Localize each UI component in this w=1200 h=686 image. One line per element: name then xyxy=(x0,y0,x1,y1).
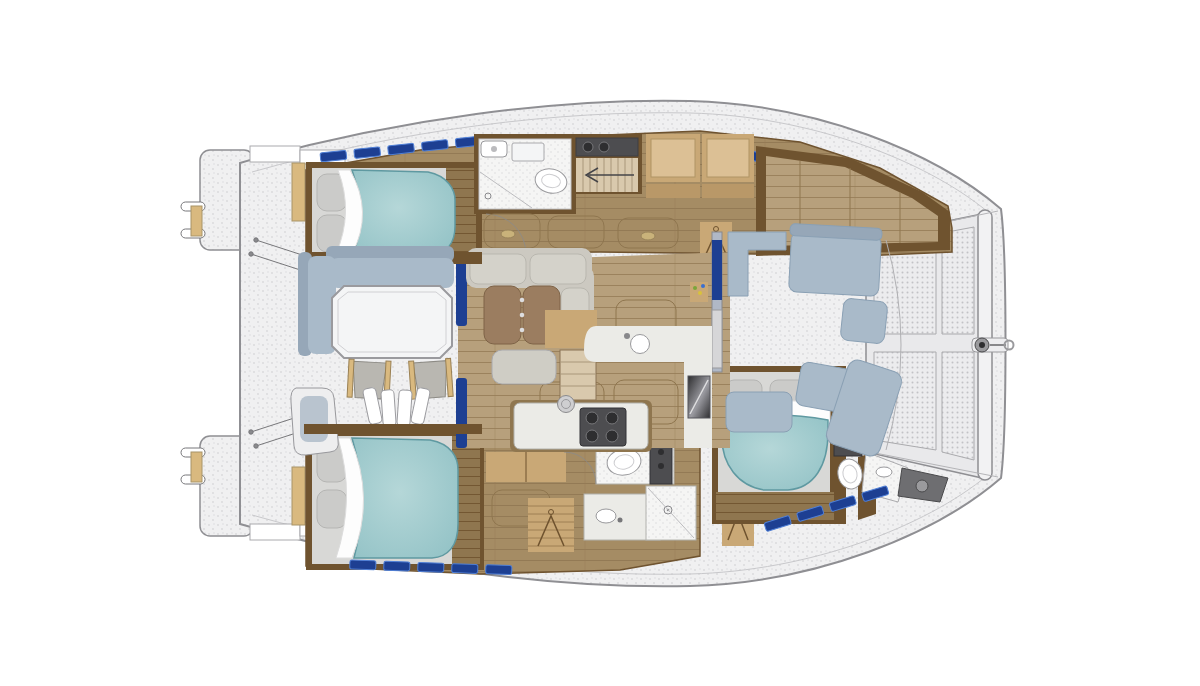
burner-icon xyxy=(606,430,618,442)
deck-locker-board-bottom xyxy=(292,467,305,525)
hull-window xyxy=(350,560,376,570)
davit-hook-icon xyxy=(254,238,258,242)
hinge-icon xyxy=(520,298,525,303)
cockpit-cushion xyxy=(788,232,881,297)
vanity-counter xyxy=(512,143,544,161)
hinge-icon xyxy=(520,313,525,318)
cockpit-cushion xyxy=(840,298,888,344)
bowsprit-fitting xyxy=(972,338,1014,352)
cockpit-cushion xyxy=(726,392,792,432)
gauge-icon xyxy=(658,449,664,455)
sink xyxy=(596,509,616,523)
salon-side-window xyxy=(456,256,467,326)
cabinet-shelf xyxy=(702,184,754,198)
burner-icon xyxy=(606,412,618,424)
salon-side-window xyxy=(456,378,467,448)
cabinet-door xyxy=(651,139,695,177)
burner-icon xyxy=(586,412,598,424)
port-companionway xyxy=(572,134,642,194)
bottle-icon xyxy=(693,286,697,290)
hull-window xyxy=(486,565,512,575)
table-leaf xyxy=(484,286,521,344)
ceiling-lamp-icon xyxy=(641,232,655,240)
wet-bar-shelf xyxy=(690,282,708,302)
davit-hook-icon xyxy=(254,444,258,448)
stove-dial-icon xyxy=(583,142,593,152)
davit-hook-icon xyxy=(249,430,253,434)
cabinet-door xyxy=(707,139,749,177)
stove-dial-icon xyxy=(599,142,609,152)
burner-icon xyxy=(586,430,598,442)
salon-front-window xyxy=(712,240,722,300)
canister-icon xyxy=(558,396,575,413)
cockpit-bench-seat xyxy=(330,258,454,288)
galley-sink xyxy=(631,335,650,354)
salon xyxy=(456,232,730,452)
cockpit-dining-table xyxy=(332,286,452,358)
berth-duvet-teal xyxy=(352,438,458,558)
faucet-icon xyxy=(491,146,497,152)
cabinet-shelf xyxy=(646,184,700,198)
helm-seat-cushion xyxy=(300,396,328,442)
deck-locker-board-top xyxy=(292,163,305,221)
swim-ladder-board xyxy=(191,206,202,236)
faucet-icon xyxy=(624,333,630,339)
windlass-icon xyxy=(916,480,928,492)
faucet-icon xyxy=(618,518,623,523)
sofa-cushion xyxy=(530,254,586,284)
starboard-hanging-locker-aft xyxy=(528,498,574,552)
step xyxy=(250,146,300,162)
davit-hook-icon xyxy=(249,252,253,256)
berth-duvet-teal xyxy=(352,170,455,254)
step xyxy=(250,524,300,540)
swim-ladder-board xyxy=(191,452,202,482)
cabin-fwd-bulkhead xyxy=(304,424,482,434)
hinge-icon xyxy=(520,328,525,333)
catamaran-floorplan xyxy=(0,0,1200,686)
sink xyxy=(876,467,892,477)
bottle-icon xyxy=(698,291,702,295)
step xyxy=(397,390,412,427)
stove xyxy=(580,408,626,446)
ceiling-lamp-icon xyxy=(501,230,515,238)
pillow xyxy=(317,490,347,528)
step xyxy=(381,390,396,427)
hull-window xyxy=(418,562,444,572)
hull-window xyxy=(452,564,478,574)
helm-seat xyxy=(291,388,338,455)
trampoline-mesh-panel xyxy=(942,352,974,460)
port-forward-cabinets xyxy=(646,134,754,198)
hull-window xyxy=(384,561,410,571)
galley-island xyxy=(510,396,652,453)
ottoman xyxy=(492,350,556,384)
forward-cockpit-door[interactable] xyxy=(712,310,722,368)
gauge-icon xyxy=(658,463,664,469)
bottle-icon xyxy=(701,284,705,288)
floorplan-stage xyxy=(0,0,1200,686)
